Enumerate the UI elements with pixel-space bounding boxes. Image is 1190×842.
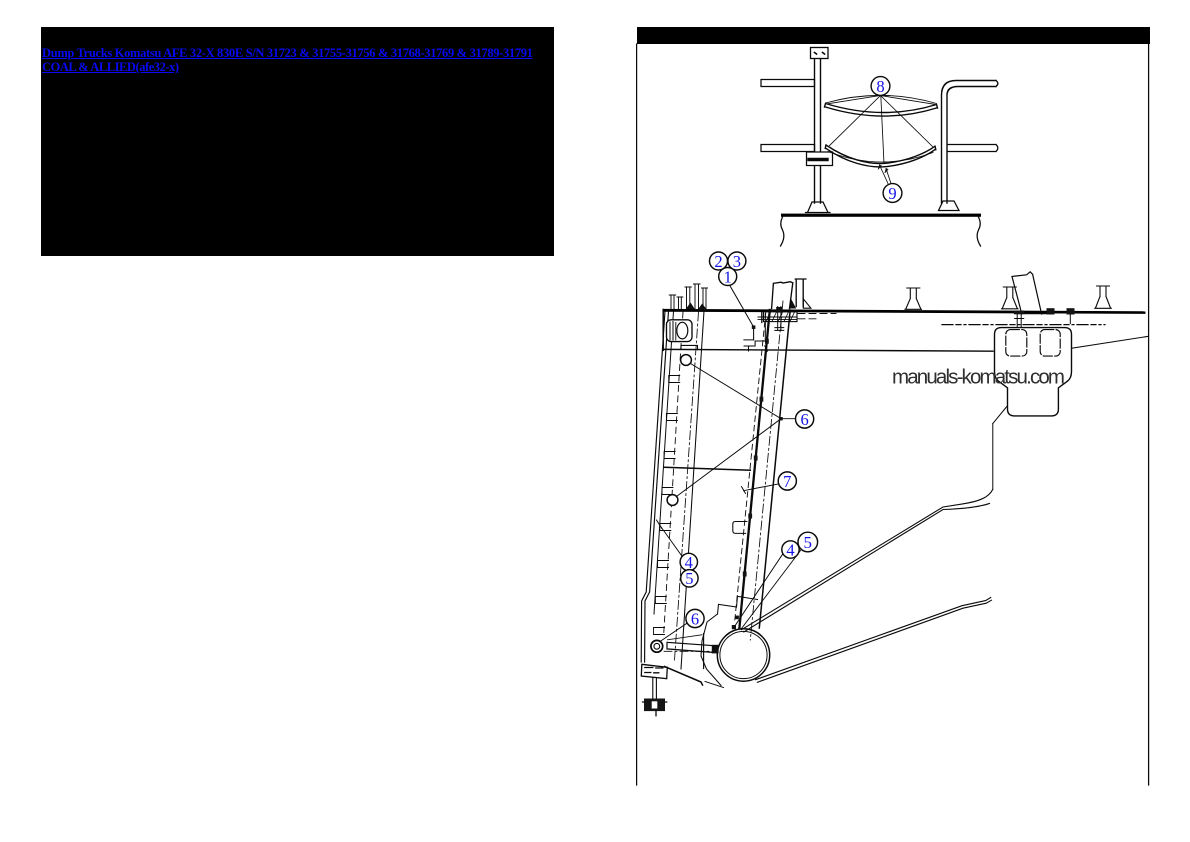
svg-text:7: 7 xyxy=(783,472,791,491)
svg-text:5: 5 xyxy=(804,533,813,552)
svg-text:6: 6 xyxy=(800,410,808,429)
svg-text:5: 5 xyxy=(685,569,693,588)
svg-text:manuals-komatsu.com: manuals-komatsu.com xyxy=(892,366,1065,389)
svg-text:1: 1 xyxy=(724,267,732,286)
svg-text:9: 9 xyxy=(888,184,896,203)
svg-text:8: 8 xyxy=(876,77,884,96)
svg-text:6: 6 xyxy=(691,609,699,628)
svg-text:4: 4 xyxy=(786,540,794,559)
svg-text:2: 2 xyxy=(714,252,722,271)
svg-text:3: 3 xyxy=(733,252,741,271)
